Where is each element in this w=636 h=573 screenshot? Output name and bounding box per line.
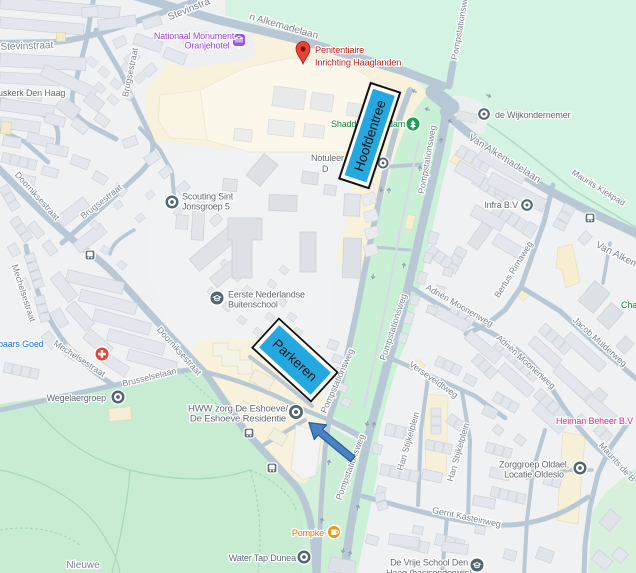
svg-text:Stevinstraat: Stevinstraat (0, 40, 53, 53)
svg-text:De Eshoeve Residentie: De Eshoeve Residentie (190, 414, 286, 425)
svg-text:Cha: Cha (621, 300, 636, 310)
svg-text:D: D (322, 164, 329, 174)
svg-text:Locatie Oldeslo: Locatie Oldeslo (504, 470, 564, 480)
svg-text:Inrichting Haaglanden: Inrichting Haaglanden (315, 58, 401, 68)
svg-text:Oranjehotel: Oranjehotel (185, 41, 230, 51)
svg-text:Infra B.V: Infra B.V (484, 200, 518, 210)
svg-text:Nieuwe: Nieuwe (66, 560, 100, 571)
svg-text:uskerk Den Haag: uskerk Den Haag (0, 88, 65, 98)
svg-text:Water Tap Dunea: Water Tap Dunea (229, 553, 296, 563)
svg-text:Scouting Sint: Scouting Sint (182, 192, 234, 202)
svg-text:Pompke: Pompke (292, 528, 324, 538)
svg-text:de Wijkondernemer: de Wijkondernemer (495, 110, 571, 120)
svg-text:Eerste Nederlandse: Eerste Nederlandse (228, 290, 305, 300)
svg-text:De Vrije School Den: De Vrije School Den (390, 558, 468, 568)
svg-text:Penitentiaire: Penitentiaire (315, 45, 364, 55)
svg-text:Jorisgroep 5: Jorisgroep 5 (182, 202, 230, 212)
svg-text:Wegelaergroep: Wegelaergroep (47, 393, 107, 403)
svg-text:Heiman Beheer B.V: Heiman Beheer B.V (556, 416, 633, 426)
svg-text:Zorggroep Oldael,: Zorggroep Oldael, (499, 460, 569, 470)
svg-text:Shadd: Shadd (331, 119, 356, 129)
svg-text:Haag (basisonderwijs): Haag (basisonderwijs) (386, 568, 472, 573)
svg-text:Buitenschool: Buitenschool (228, 300, 278, 310)
svg-text:baars Goed: baars Goed (0, 339, 44, 349)
svg-text:Nationaal Monument: Nationaal Monument (154, 31, 235, 41)
svg-text:Notuleer: Notuleer (311, 153, 344, 163)
